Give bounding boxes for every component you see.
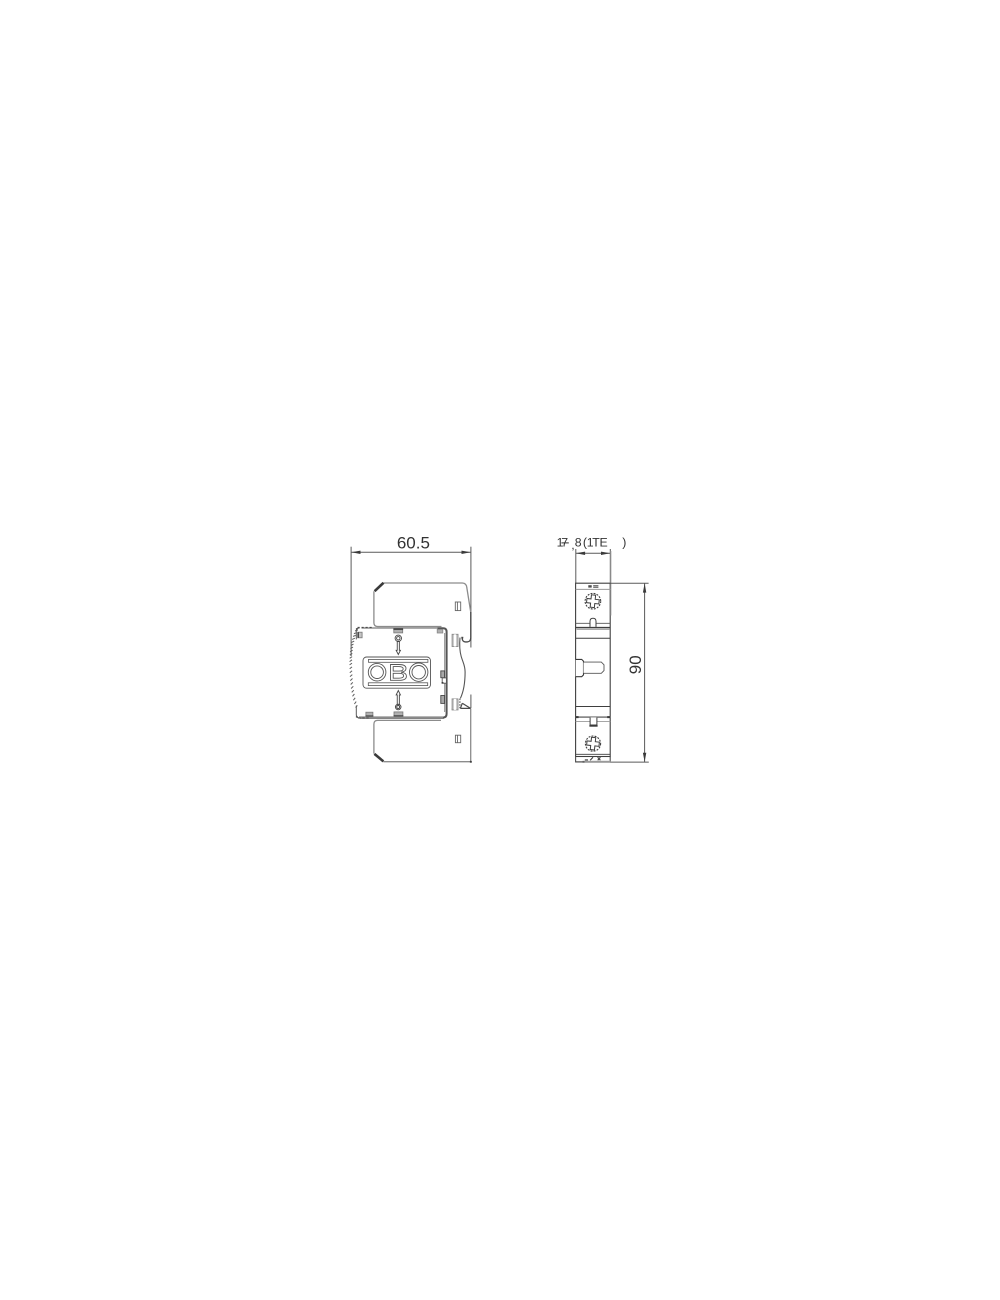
svg-text:): )	[622, 536, 626, 550]
svg-text:8: 8	[575, 536, 582, 550]
svg-text:90: 90	[626, 655, 645, 674]
svg-text:60.5: 60.5	[397, 534, 430, 553]
svg-text:E: E	[600, 536, 608, 550]
